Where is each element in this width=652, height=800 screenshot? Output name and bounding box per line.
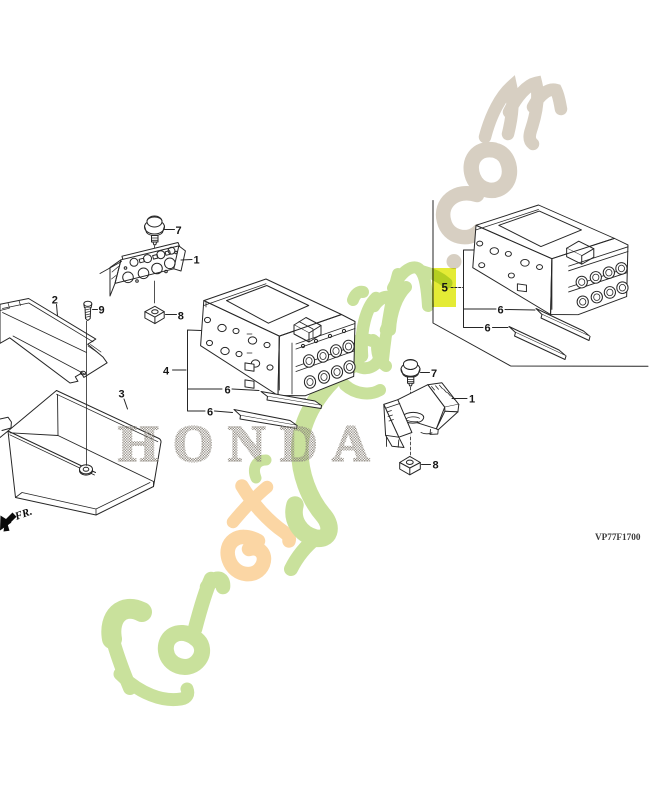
svg-text:7: 7 xyxy=(431,368,437,380)
svg-text:HONDA: HONDA xyxy=(118,416,384,473)
svg-text:2: 2 xyxy=(52,295,58,307)
svg-text:7: 7 xyxy=(176,225,182,237)
svg-text:6: 6 xyxy=(225,385,231,397)
svg-text:VP77F1700: VP77F1700 xyxy=(595,532,641,542)
svg-text:4: 4 xyxy=(163,366,170,378)
svg-text:6: 6 xyxy=(485,323,491,335)
svg-text:3: 3 xyxy=(119,389,125,401)
svg-text:1: 1 xyxy=(469,394,475,406)
svg-text:8: 8 xyxy=(433,460,439,472)
svg-text:9: 9 xyxy=(99,305,105,317)
svg-text:1: 1 xyxy=(194,255,200,267)
svg-text:6: 6 xyxy=(498,305,504,317)
svg-text:8: 8 xyxy=(178,311,184,323)
svg-text:5: 5 xyxy=(442,283,449,295)
